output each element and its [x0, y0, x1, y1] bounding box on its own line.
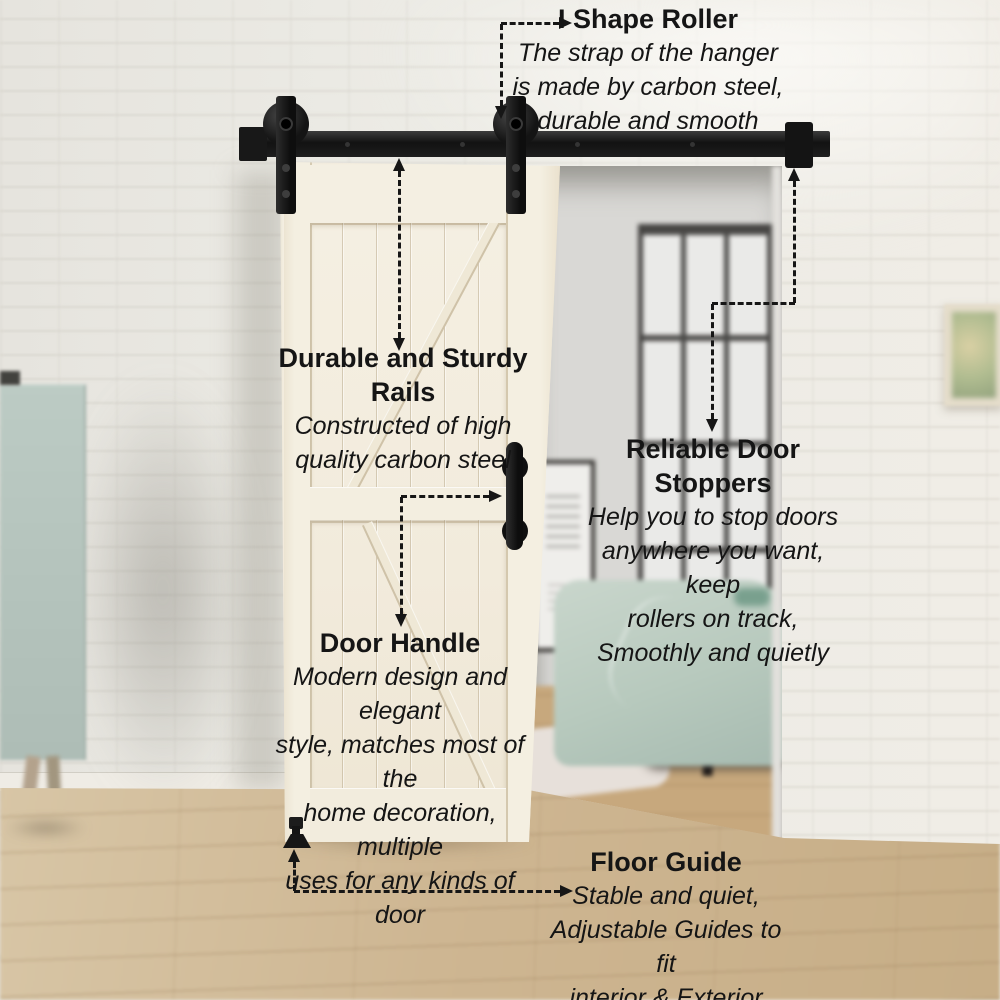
rails-arrowhead	[393, 158, 405, 171]
callout-line: home decoration, multiple	[266, 796, 534, 864]
poster-art	[546, 488, 580, 548]
strap-bolt	[282, 190, 290, 198]
door-middle-rail	[310, 487, 506, 523]
callout-floor-guide: Floor Guide Stable and quiet, Adjustable…	[541, 845, 791, 1000]
rail-mount-bolt	[575, 142, 580, 147]
strap-bolt	[512, 164, 520, 172]
callout-line: is made by carbon steel,	[498, 70, 798, 104]
callout-title: Door Handle	[266, 626, 534, 660]
callout-line: durable and smooth	[498, 104, 798, 138]
product-infographic: I Shape Roller The strap of the hanger i…	[0, 0, 1000, 1000]
handle-leader-line	[400, 497, 403, 614]
roller-hub	[279, 117, 293, 131]
strap-bolt	[512, 190, 520, 198]
cabinet-wall-shadow	[78, 380, 248, 800]
callout-stoppers: Reliable Door Stoppers Help you to stop …	[582, 432, 844, 670]
door-top-rail	[310, 165, 506, 225]
callout-line: The strap of the hanger	[498, 36, 798, 70]
callout-rails: Durable and Sturdy Rails Constructed of …	[272, 341, 534, 477]
callout-line: Smoothly and quietly	[582, 636, 844, 670]
callout-line: quality carbon steel	[272, 443, 534, 477]
left-end-stop	[239, 127, 267, 161]
strap-bolt	[282, 164, 290, 172]
callout-title: I Shape Roller	[498, 2, 798, 36]
wall-picture-frame	[944, 304, 1000, 406]
callout-line: Modern design and elegant	[266, 660, 534, 728]
stopper-leader-line	[793, 181, 796, 303]
callout-line: Stable and quiet,	[541, 879, 791, 913]
callout-handle: Door Handle Modern design and elegant st…	[266, 626, 534, 932]
stopper-arrowhead	[788, 168, 800, 181]
stopper-leader-line	[711, 304, 714, 419]
stopper-leader-line	[712, 302, 795, 305]
handle-arrowhead	[489, 490, 502, 502]
cabinet-floor-shadow	[4, 820, 88, 836]
callout-title: Durable and Sturdy Rails	[272, 341, 534, 409]
callout-line: Adjustable Guides to fit	[541, 913, 791, 981]
rail-mount-bolt	[460, 142, 465, 147]
callout-title: Reliable Door Stoppers	[582, 432, 844, 500]
stopper-arrowhead	[706, 419, 718, 432]
rails-leader-line	[398, 171, 401, 338]
callout-line: anywhere you want, keep	[582, 534, 844, 602]
picture-art	[952, 312, 996, 398]
callout-line: rollers on track,	[582, 602, 844, 636]
callout-line: Constructed of high	[272, 409, 534, 443]
callout-title: Floor Guide	[541, 845, 791, 879]
rail-mount-bolt	[690, 142, 695, 147]
callout-line: interior & Exterior Doors	[541, 981, 791, 1000]
handle-leader-line	[401, 495, 489, 498]
cabinet-top-object	[0, 371, 20, 385]
sideboard-cabinet	[0, 384, 86, 760]
rail-mount-bolt	[345, 142, 350, 147]
callout-line: uses for any kinds of door	[266, 864, 534, 932]
callout-roller: I Shape Roller The strap of the hanger i…	[498, 2, 798, 138]
callout-line: Help you to stop doors	[582, 500, 844, 534]
callout-line: style, matches most of the	[266, 728, 534, 796]
